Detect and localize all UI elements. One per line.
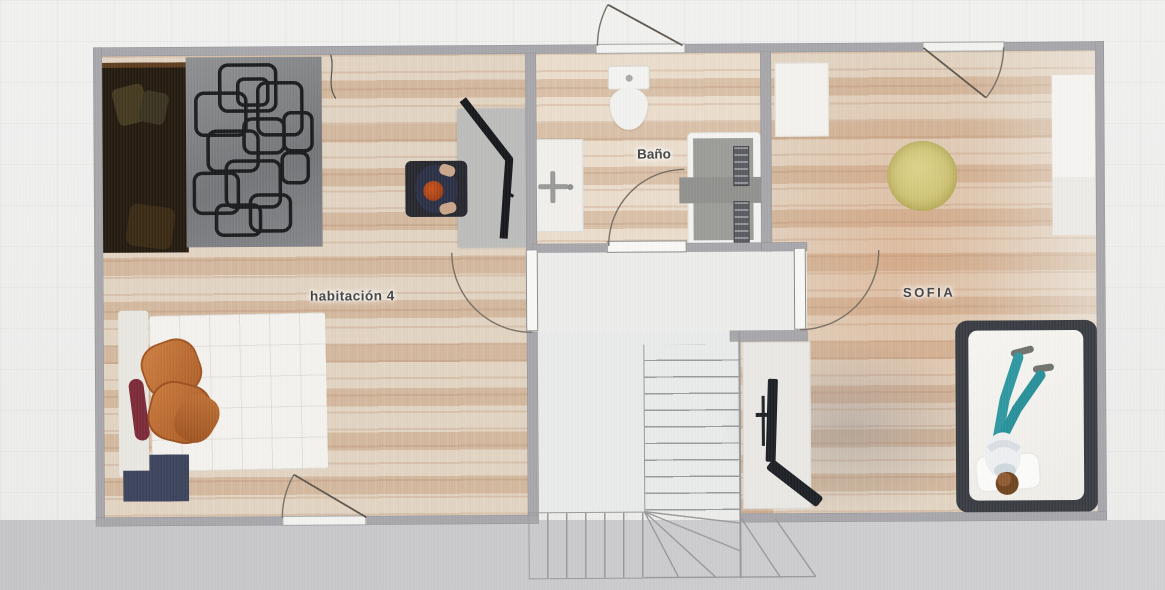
- room-label-habitacion-4: habitación 4: [310, 288, 395, 304]
- door-leaf-entrance-open[interactable]: [608, 4, 682, 45]
- door-arc-entrance: [597, 5, 608, 46]
- door-leaf-habitacion[interactable]: [526, 249, 539, 331]
- bed-pillow: [976, 453, 1040, 492]
- wall-bottom-left-a: [96, 517, 282, 526]
- floorplan-screenshot: habitación 4 Baño SOFIA: [0, 0, 1165, 590]
- desk[interactable]: [457, 108, 530, 247]
- wardrobe-right-lower[interactable]: [1052, 177, 1095, 235]
- toilet-flush-button: [626, 75, 633, 82]
- wall-top-right: [1003, 42, 1103, 51]
- wall-stairwell-top: [730, 331, 807, 341]
- wall-bottom-right: [740, 512, 1106, 522]
- tv-stand-post: [762, 396, 765, 446]
- door-leaf-bano[interactable]: [607, 240, 687, 252]
- tv-stand-foot: [756, 413, 770, 417]
- faucet-knob: [567, 184, 573, 190]
- wall-bano-bottom-left: [533, 244, 608, 252]
- rug-pattern: [186, 57, 323, 248]
- toilet-tank[interactable]: [608, 66, 650, 90]
- wall-right: [1095, 42, 1106, 520]
- shower-bench: [679, 177, 769, 204]
- sink[interactable]: [533, 139, 584, 232]
- dark-bed-pillow-2: [138, 89, 170, 126]
- wardrobe-left[interactable]: [775, 62, 829, 136]
- wardrobe-right-upper[interactable]: [1052, 75, 1096, 179]
- wall-habitacion-bano: [526, 53, 537, 250]
- round-rug-yellow[interactable]: [887, 141, 957, 211]
- shower[interactable]: [687, 132, 762, 246]
- hallway-landing-floor: [537, 249, 807, 333]
- shower-grille-bottom: [733, 201, 749, 243]
- door-leaf-sofia[interactable]: [794, 248, 807, 330]
- wall-bano-sofia: [761, 52, 772, 251]
- entrance-door-opening: [595, 43, 685, 54]
- dark-bed-blanket: [125, 203, 176, 251]
- sofia-top-door-opening: [922, 41, 1004, 52]
- room-label-bano: Baño: [637, 146, 671, 161]
- double-bed-dark[interactable]: [101, 62, 189, 253]
- faucet-vertical: [550, 171, 555, 203]
- wall-habitacion-stairwell: [527, 332, 538, 515]
- wall-top-middle: [684, 43, 923, 52]
- wall-bano-bottom-right: [686, 243, 772, 252]
- floor-plan: habitación 4 Baño SOFIA: [0, 0, 1165, 590]
- staircase-upper-flight[interactable]: [643, 344, 741, 512]
- staircase-lower-flight[interactable]: [528, 512, 644, 580]
- geometric-pattern-rug[interactable]: [186, 57, 323, 248]
- person-sitting-head: [423, 181, 443, 201]
- office-chair[interactable]: [405, 161, 467, 217]
- shower-grille-top: [733, 146, 749, 186]
- exterior-bottom-door-opening: [282, 515, 366, 526]
- room-label-sofia: SOFIA: [903, 285, 955, 300]
- wall-bottom-left-b: [366, 515, 538, 524]
